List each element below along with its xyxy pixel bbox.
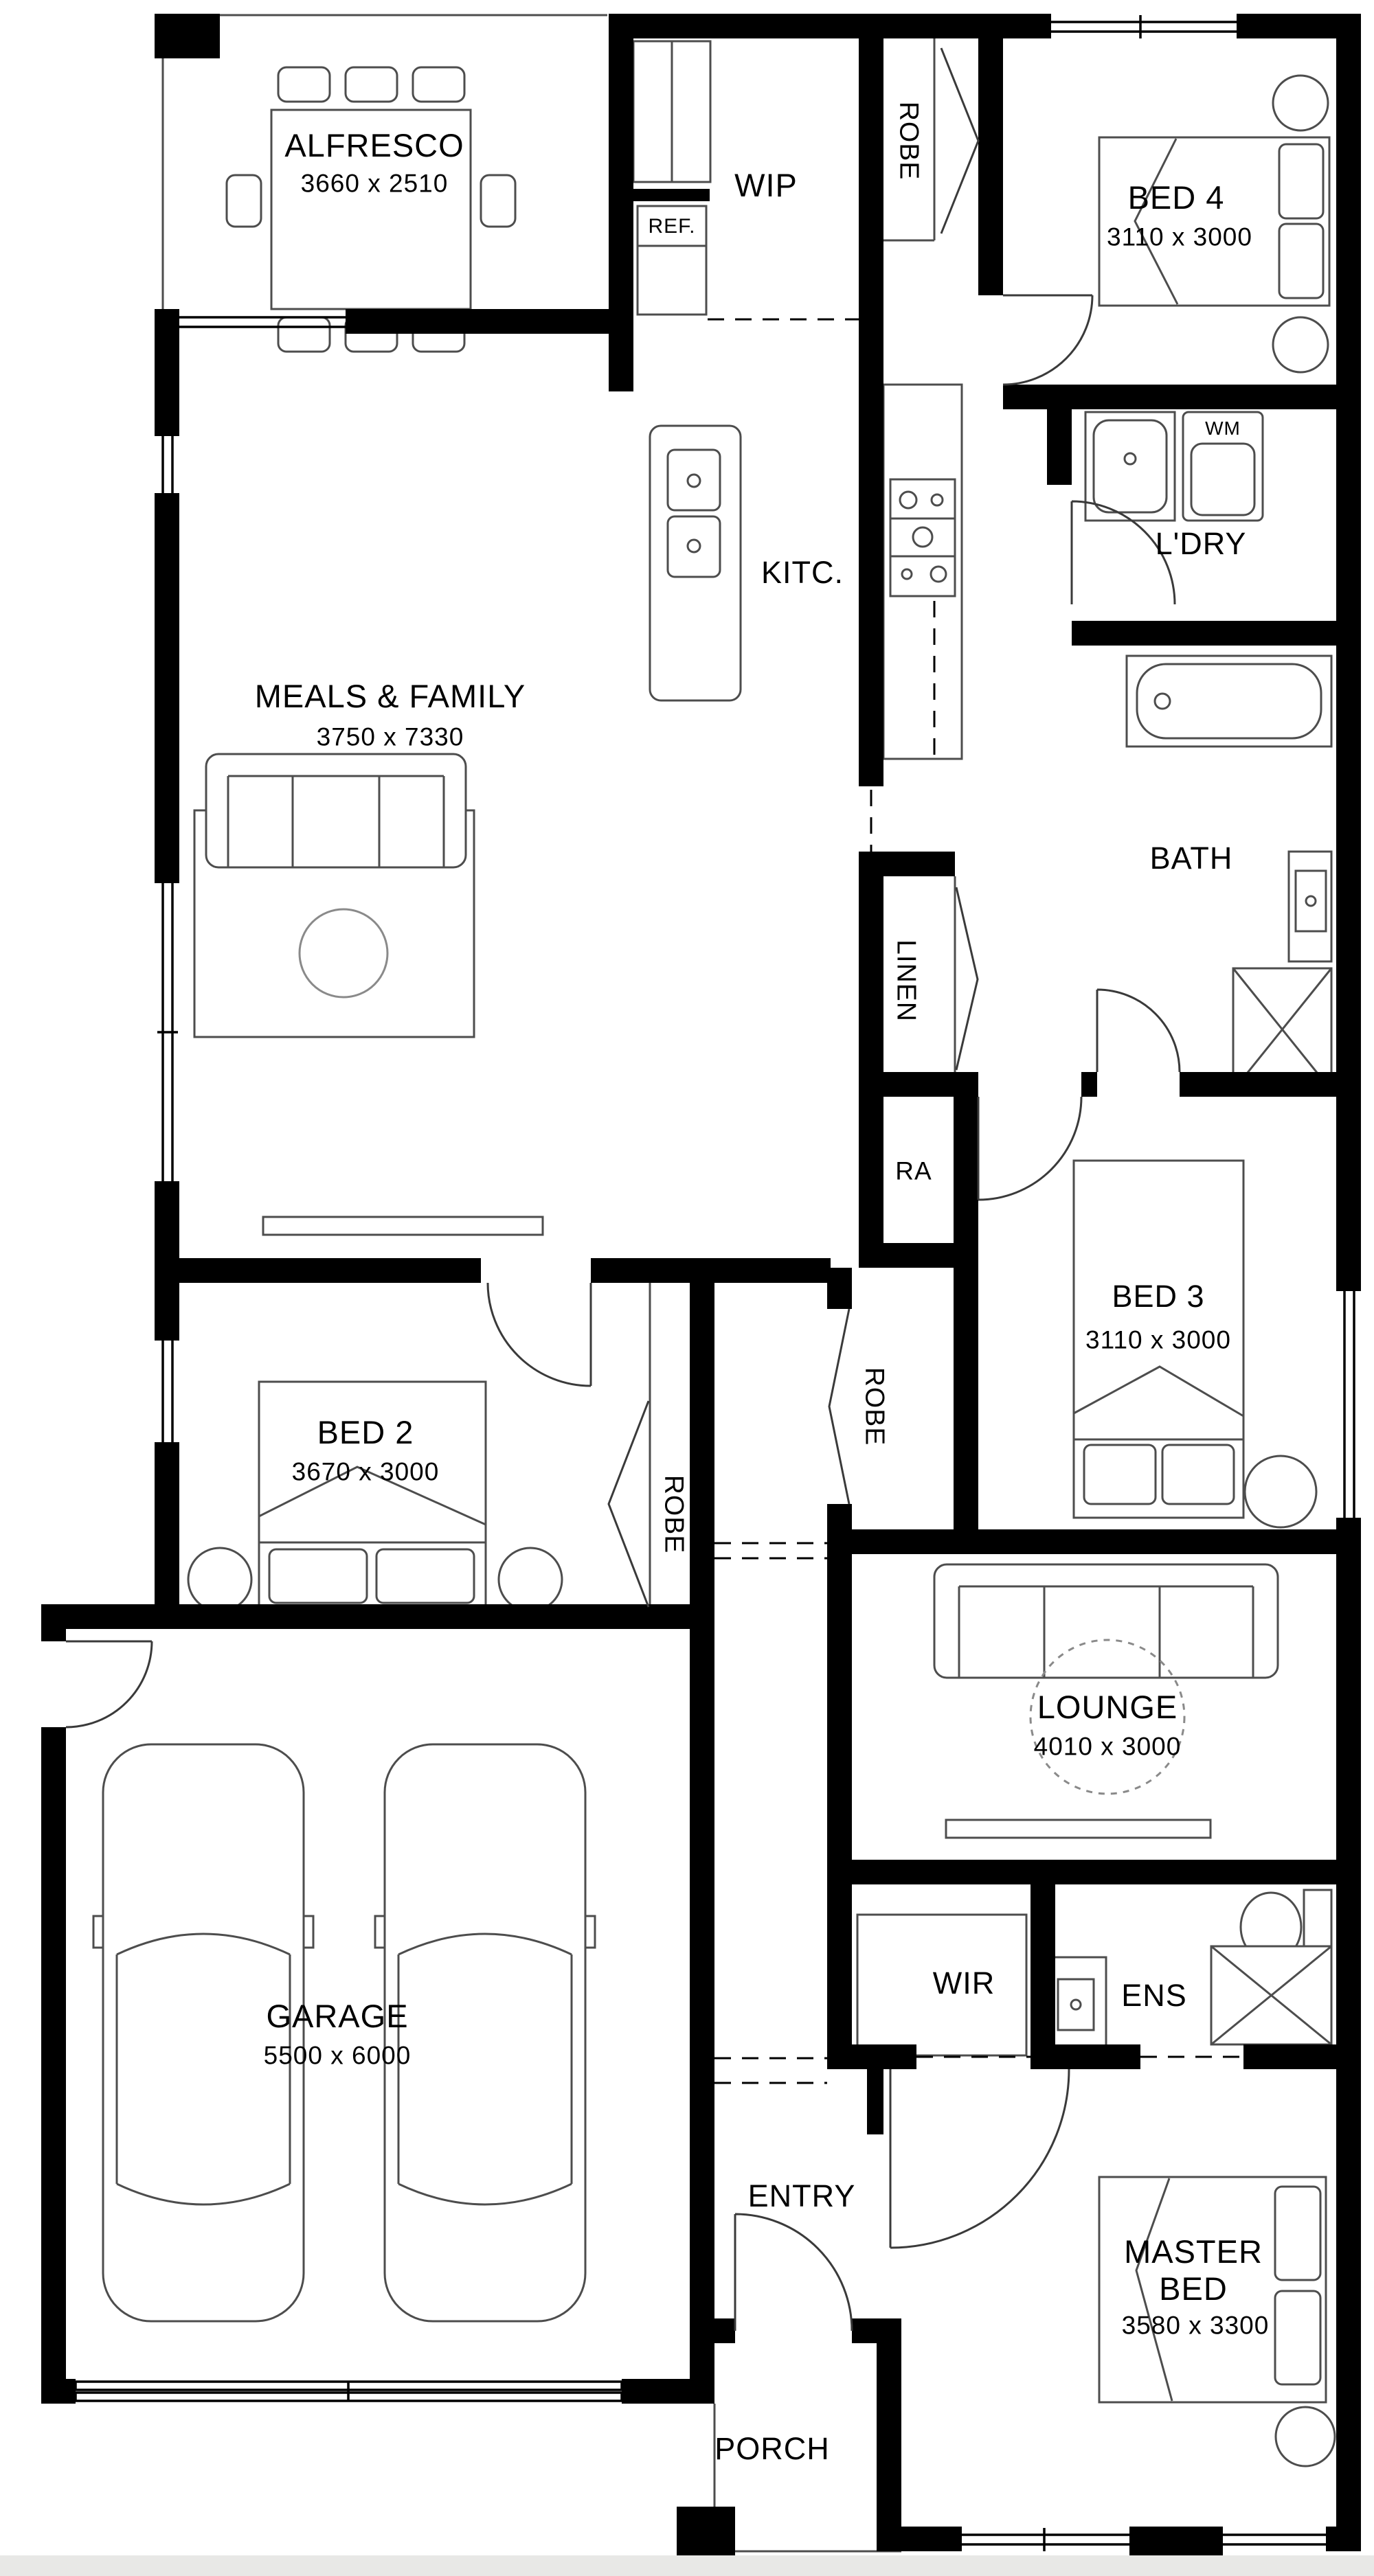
room-label-garage: GARAGE bbox=[266, 1998, 408, 2035]
bed2-door bbox=[488, 1283, 591, 1386]
bath-door bbox=[1097, 990, 1180, 1072]
fixture-label-robe-bed3: ROBE bbox=[859, 1367, 890, 1446]
hall-robe-bifold bbox=[941, 48, 978, 233]
room-label-alfresco: ALFRESCO bbox=[284, 127, 464, 164]
bed4-door bbox=[1003, 295, 1092, 385]
lounge-sofa bbox=[934, 1564, 1278, 1678]
fixture-label-robe-hall: ROBE bbox=[893, 102, 924, 181]
room-label-entry: ENTRY bbox=[748, 2178, 856, 2214]
room-dims-bed3: 3110 x 3000 bbox=[1085, 1326, 1231, 1356]
room-label-kitchen: KITC. bbox=[761, 555, 844, 591]
room-dims-meals-family: 3750 x 7330 bbox=[317, 723, 464, 753]
room-label-bed4: BED 4 bbox=[1128, 179, 1225, 216]
room-label-bath: BATH bbox=[1150, 841, 1233, 876]
room-dims-bed2: 3670 x 3000 bbox=[292, 1458, 440, 1488]
fixture-label-robe-bed2: ROBE bbox=[658, 1475, 689, 1554]
room-dims-bed4: 3110 x 3000 bbox=[1107, 223, 1252, 253]
family-sofa bbox=[194, 754, 474, 1037]
bed2-robe-bifold bbox=[609, 1401, 649, 1607]
fixture-label-fridge: REF. bbox=[648, 215, 695, 239]
family-tv-unit bbox=[263, 1217, 543, 1235]
cooktop bbox=[890, 479, 955, 596]
room-label-porch: PORCH bbox=[714, 2431, 830, 2467]
room-label-meals-family: MEALS & FAMILY bbox=[255, 678, 526, 715]
pantry-shelves bbox=[633, 41, 710, 182]
bath-vanity bbox=[1289, 852, 1331, 961]
room-label-lounge: LOUNGE bbox=[1037, 1689, 1178, 1726]
master-door bbox=[890, 2069, 1069, 2248]
room-label-ra: RA bbox=[895, 1157, 932, 1187]
room-label-master-bed: MASTER BED bbox=[1107, 2233, 1279, 2307]
room-dims-master-bed: 3580 x 3300 bbox=[1122, 2312, 1270, 2341]
room-dims-alfresco: 3660 x 2510 bbox=[301, 170, 449, 199]
floor-plan: ALFRESCO 3660 x 2510 WIP REF. ROBE BED 4… bbox=[0, 0, 1374, 2576]
fixture-label-wm: WM bbox=[1205, 418, 1241, 440]
room-label-bed3: BED 3 bbox=[1112, 1279, 1204, 1314]
kitchen-island bbox=[650, 426, 741, 700]
room-dims-garage: 5500 x 6000 bbox=[264, 2042, 412, 2071]
room-label-laundry: L'DRY bbox=[1156, 526, 1247, 562]
bathtub bbox=[1127, 656, 1331, 746]
front-door bbox=[735, 2214, 852, 2331]
bed3-door bbox=[978, 1097, 1081, 1200]
garage-pa-door bbox=[66, 1641, 152, 1727]
bed3-robe-bifold bbox=[829, 1309, 849, 1504]
ens-vanity bbox=[1047, 1957, 1106, 2055]
paper-edge bbox=[0, 2555, 1374, 2576]
room-label-bed2: BED 2 bbox=[317, 1414, 414, 1451]
room-label-wip: WIP bbox=[734, 167, 798, 204]
ens-shower bbox=[1211, 1946, 1331, 2044]
linen-bifold bbox=[956, 887, 978, 1070]
room-label-ens: ENS bbox=[1121, 1978, 1187, 2014]
room-dims-lounge: 4010 x 3000 bbox=[1034, 1733, 1182, 1762]
room-label-wir: WIR bbox=[933, 1965, 995, 2001]
lounge-tv-unit bbox=[946, 1820, 1210, 1838]
dining-table bbox=[227, 67, 515, 352]
room-label-linen: LINEN bbox=[890, 939, 921, 1022]
